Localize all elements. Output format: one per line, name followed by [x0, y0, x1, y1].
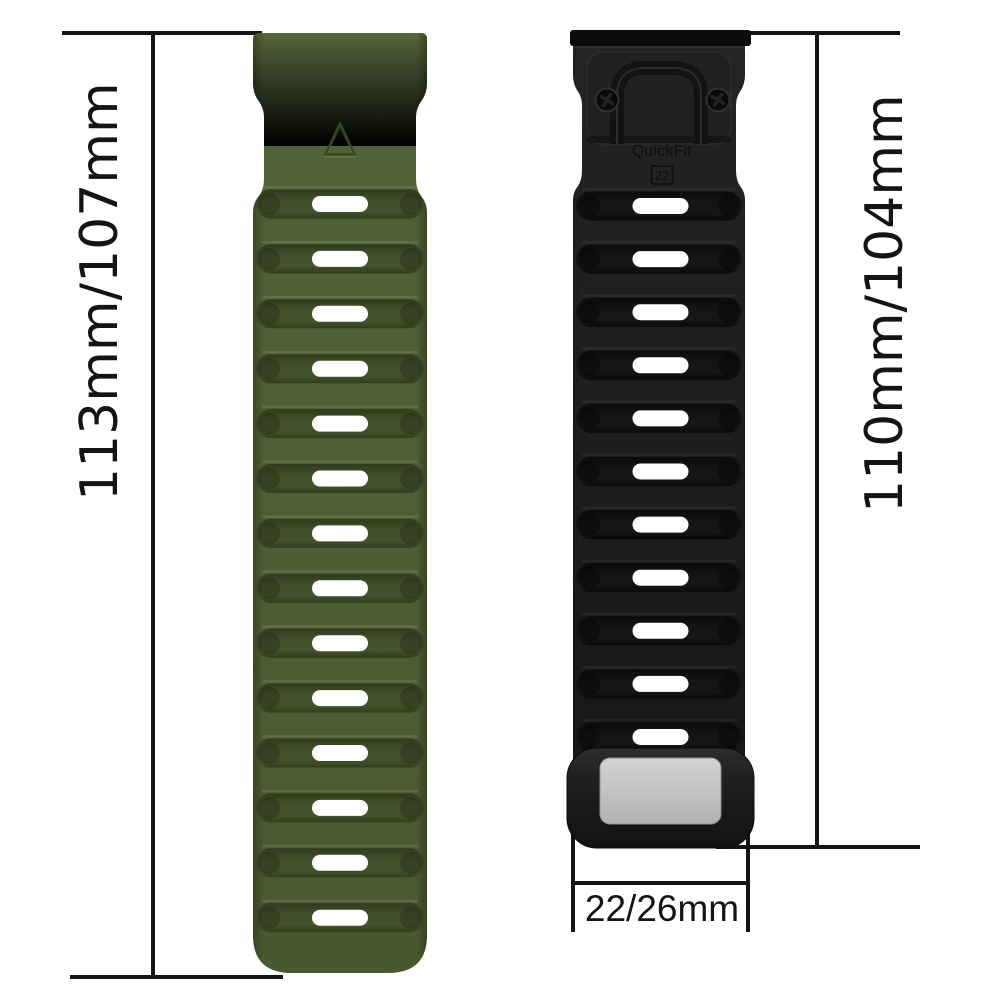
left-dimension-vertical-line [151, 33, 155, 977]
green-strap [253, 33, 427, 973]
keeper-metal-face [600, 758, 721, 824]
screw-right-icon [707, 89, 730, 112]
bottom-dimension-label: 22/26mm [585, 888, 739, 930]
left-dimension-bottom-cap [70, 975, 283, 979]
size-badge-text: 22 [655, 169, 669, 183]
keeper-loop [567, 748, 754, 848]
quickfit-brand-text: QuickFit [632, 143, 692, 160]
right-dimension-vertical-line [815, 33, 819, 847]
left-dimension-top-cap [62, 31, 262, 35]
screw-left-icon [596, 89, 619, 112]
black-strap: QuickFit 22 [565, 30, 756, 850]
bottom-dimension-horizontal-line [573, 881, 750, 885]
connector-top-bar [570, 30, 751, 46]
right-dimension-top-cap [737, 31, 900, 35]
product-image-canvas: 113mm/107mm 110mm/104mm 22/26mm [0, 0, 1000, 1000]
